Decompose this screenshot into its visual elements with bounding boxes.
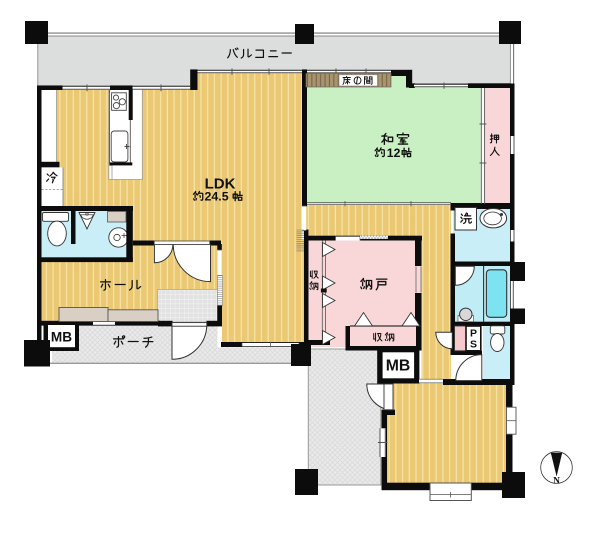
svg-text:MB: MB [386,358,411,375]
svg-text:MB: MB [51,330,72,345]
svg-text:N: N [553,477,560,487]
svg-text:S: S [470,339,477,351]
svg-text:12: 12 [387,146,401,160]
svg-text:24.5: 24.5 [205,190,229,204]
